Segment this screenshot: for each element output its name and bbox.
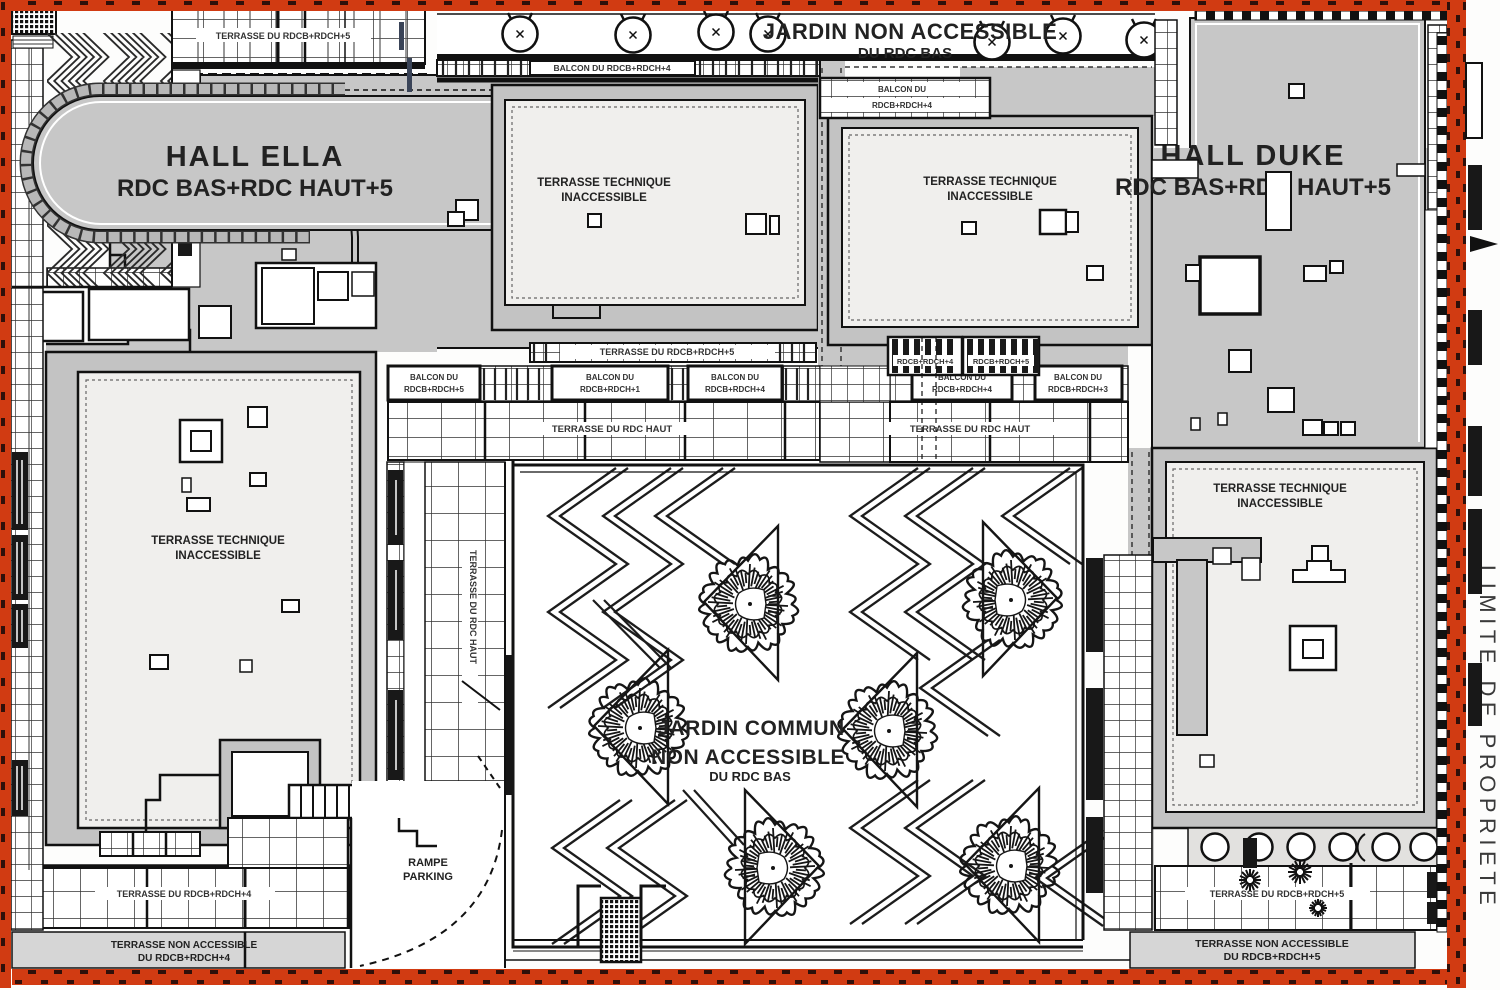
svg-text:RDCB+RDCH+5: RDCB+RDCH+5 [973,357,1029,366]
svg-text:TERRASSE DU RDC HAUT: TERRASSE DU RDC HAUT [468,550,478,665]
svg-text:HALL ELLA: HALL ELLA [166,141,345,173]
svg-text:DU RDCB+RDCH+4: DU RDCB+RDCH+4 [138,953,231,964]
svg-text:DU RDCB+RDCH+5: DU RDCB+RDCH+5 [1224,951,1321,963]
svg-text:DU RDC BAS: DU RDC BAS [709,769,791,784]
svg-text:TERRASSE TECHNIQUE: TERRASSE TECHNIQUE [1213,483,1347,495]
svg-text:INACCESSIBLE: INACCESSIBLE [947,191,1033,203]
svg-text:BALCON DU RDCB+RDCH+4: BALCON DU RDCB+RDCH+4 [553,63,670,73]
svg-text:RDCB+RDCH+3: RDCB+RDCH+3 [1048,385,1109,394]
svg-text:TERRASSE DU RDC HAUT: TERRASSE DU RDC HAUT [910,424,1031,435]
svg-text:TERRASSE DU RDCB+RDCH+5: TERRASSE DU RDCB+RDCH+5 [600,347,735,357]
svg-text:INACCESSIBLE: INACCESSIBLE [175,550,261,562]
svg-text:LIMITE DE PROPRIETE: LIMITE DE PROPRIETE [1475,565,1500,910]
svg-text:TERRASSE TECHNIQUE: TERRASSE TECHNIQUE [537,177,671,189]
svg-text:TERRASSE DU RDCB+RDCH+5: TERRASSE DU RDCB+RDCH+5 [216,31,351,41]
svg-text:TERRASSE TECHNIQUE: TERRASSE TECHNIQUE [923,176,1057,188]
svg-text:RDCB+RDCH+1: RDCB+RDCH+1 [580,385,641,394]
svg-text:TERRASSE NON ACCESSIBLE: TERRASSE NON ACCESSIBLE [111,940,258,951]
svg-text:INACCESSIBLE: INACCESSIBLE [1237,498,1323,510]
svg-text:PARKING: PARKING [403,871,453,883]
svg-text:BALCON DU: BALCON DU [1054,373,1102,382]
svg-text:TERRASSE DU RDCB+RDCH+4: TERRASSE DU RDCB+RDCH+4 [117,889,252,899]
svg-text:TERRASSE DU RDCB+RDCH+5: TERRASSE DU RDCB+RDCH+5 [1210,889,1345,899]
svg-text:RDCB+RDCH+4: RDCB+RDCH+4 [872,101,933,110]
svg-text:TERRASSE NON ACCESSIBLE: TERRASSE NON ACCESSIBLE [1195,938,1349,950]
svg-text:RDC BAS+RDC HAUT+5: RDC BAS+RDC HAUT+5 [117,175,393,202]
svg-text:RDCB+RDCH+4: RDCB+RDCH+4 [705,385,766,394]
svg-text:JARDIN COMMUN: JARDIN COMMUN [657,717,844,740]
svg-text:INACCESSIBLE: INACCESSIBLE [561,192,647,204]
svg-text:RDCB+RDCH+5: RDCB+RDCH+5 [404,385,465,394]
svg-text:RDCB+RDCH+4: RDCB+RDCH+4 [897,357,954,366]
svg-text:RAMPE: RAMPE [408,857,448,869]
svg-text:BALCON DU: BALCON DU [586,373,634,382]
svg-text:BALCON DU: BALCON DU [410,373,458,382]
svg-text:DU RDC BAS: DU RDC BAS [858,45,952,62]
svg-text:BALCON DU: BALCON DU [711,373,759,382]
svg-text:TERRASSE TECHNIQUE: TERRASSE TECHNIQUE [151,535,285,547]
svg-text:TERRASSE DU RDC HAUT: TERRASSE DU RDC HAUT [552,424,673,435]
svg-text:JARDIN NON ACCESSIBLE: JARDIN NON ACCESSIBLE [763,19,1058,44]
svg-text:BALCON DU: BALCON DU [878,85,926,94]
svg-text:NON ACCESSIBLE: NON ACCESSIBLE [651,746,845,769]
svg-text:RDCB+RDCH+4: RDCB+RDCH+4 [932,385,993,394]
